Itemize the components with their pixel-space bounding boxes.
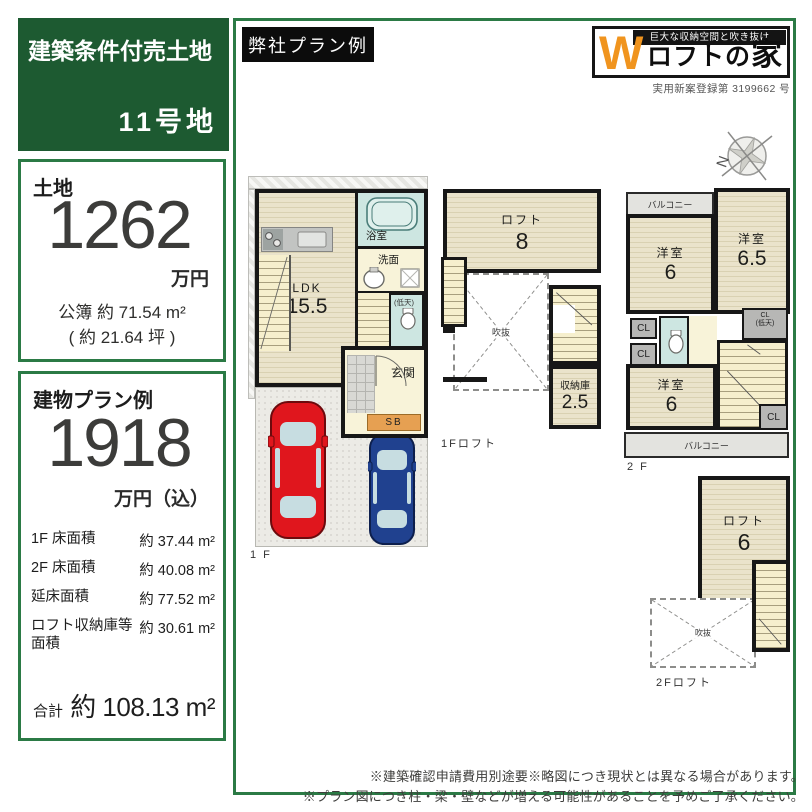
lot-number-label: 11号地: [118, 100, 217, 139]
land-price-panel: 土地 1262 万円 公簿 約 71.54 m² ( 約 21.64 坪 ): [18, 159, 226, 362]
entrance-tile: [347, 355, 375, 413]
logo-box: 巨大な収納空間と吹き抜け W ロフトの家: [592, 26, 790, 78]
room-label: 洋室: [738, 230, 766, 247]
land-price-unit: 万円: [171, 264, 209, 291]
disclaimer-line: ※プラン図につき柱・梁・壁などが増える可能性があることを予めご了承ください。: [303, 787, 804, 807]
balcony-top: バルコニー: [626, 192, 714, 216]
ldk-size: 15.5: [287, 295, 328, 319]
title-box: 建築条件付売土地 11号地: [18, 18, 229, 151]
toilet-icon: [668, 330, 684, 354]
total-value: 約 108.13 m²: [70, 687, 215, 724]
stairs-2f-loft: [752, 560, 790, 652]
logo-name: ロフトの家: [647, 29, 783, 74]
site-edge-hatch: [248, 176, 428, 189]
table-row: 延床面積 約 77.52 m²: [31, 588, 215, 609]
row-label: 延床面積: [31, 588, 139, 609]
car-blue-icon: [368, 432, 416, 546]
void-label: 吹抜: [693, 628, 713, 639]
room-wc: (低天): [389, 293, 424, 353]
sale-type-label: 建築条件付売土地: [28, 32, 212, 66]
company-plan-tag: 弊社プラン例: [242, 27, 374, 62]
floor-plan-2f-loft: ロフト 6 吹抜 2Fロフト: [648, 470, 794, 710]
wc-low-ceiling-note: (低天): [394, 297, 414, 308]
land-area-tsubo: ( 約 21.64 坪 ): [21, 323, 223, 348]
balcony-label: バルコニー: [648, 198, 693, 211]
row-value: 約 30.61 m²: [139, 617, 215, 653]
closet-cl: CL: [630, 318, 657, 339]
hall-2f: [689, 316, 717, 368]
logo-w-letter: W: [599, 28, 643, 78]
stove-icon: [262, 228, 332, 251]
total-label: 合計: [33, 700, 63, 721]
row-value: 約 37.44 m²: [139, 530, 215, 551]
void-area-2f: 吹抜: [650, 598, 756, 668]
stairs-loft-right: [549, 285, 601, 365]
stairs-1f: [259, 255, 291, 351]
storage-size: 2.5: [562, 392, 588, 414]
room-size: 6: [665, 261, 677, 285]
building-price-panel: 建物プラン例 1918 万円（込） 1F 床面積 約 37.44 m² 2F 床…: [18, 371, 226, 741]
wall-bar: [443, 377, 487, 382]
compass-icon: N: [714, 126, 778, 190]
door-arc-icon: [375, 355, 407, 387]
basin-icon: [362, 267, 386, 289]
void-area: 吹抜: [453, 273, 549, 391]
total-area-row: 合計 約 108.13 m²: [33, 687, 215, 724]
table-row: ロフト収納庫等面積 約 30.61 m²: [31, 617, 215, 653]
site-edge-hatch: [248, 189, 255, 399]
loft-size: 6: [738, 529, 751, 556]
room-bath: 浴室: [355, 193, 424, 249]
utility-model-registration: 実用新案登録第 3199662 号: [592, 81, 790, 96]
stairs-mid-1f: [355, 293, 389, 347]
entrance-block: 玄関 SB: [341, 346, 428, 438]
cl-label: CL: [637, 349, 650, 360]
floor-area-table: 1F 床面積 約 37.44 m² 2F 床面積 約 40.08 m² 延床面積…: [31, 522, 215, 653]
land-area-registered: 公簿 約 71.54 m²: [21, 298, 223, 323]
wash-label: 洗面: [378, 252, 399, 267]
logo-name-tail: 家: [751, 37, 783, 72]
row-label: ロフト収納庫等面積: [31, 617, 139, 653]
room-wash: 洗面: [355, 249, 424, 293]
shoe-box: SB: [367, 414, 421, 431]
ldk-label: LDK: [292, 281, 321, 295]
caption-1f: 1 F: [250, 549, 272, 561]
cl-label: CL: [767, 412, 780, 423]
bathtub-icon: [366, 197, 418, 231]
w-loft-logo: 巨大な収納空間と吹き抜け W ロフトの家 実用新案登録第 3199662 号: [592, 26, 790, 96]
disclaimer: ※建築確認申請費用別途要※略図につき現状とは異なる場合があります。 ※プラン図に…: [303, 767, 804, 806]
balcony-label: バルコニー: [684, 439, 729, 452]
washer-pan-icon: [400, 268, 420, 288]
floor-plan-1f: LDK 15.5 浴室: [248, 176, 432, 564]
building-price: 1918: [21, 408, 217, 479]
car-red-icon: [268, 400, 328, 540]
loft-label: ロフト: [723, 512, 765, 529]
closet-cl: CL: [630, 343, 657, 366]
room-west-65: 洋室 6.5: [714, 188, 790, 314]
storage-label: 収納庫: [560, 377, 590, 392]
room-wc-2f: [659, 316, 689, 368]
toilet-icon: [400, 308, 416, 330]
room-size: 6.5: [737, 247, 766, 271]
room-size: 6: [666, 393, 678, 417]
room-west-6-bottom: 洋室 6: [626, 364, 717, 430]
row-value: 約 40.08 m²: [139, 559, 215, 580]
caption-1f-loft: 1Fロフト: [441, 435, 497, 451]
room-label: 洋室: [657, 376, 685, 393]
void-label: 吹抜: [490, 326, 512, 339]
floor-plan-1f-loft: ロフト 8 吹抜 収納庫 2.5 1Fロフト: [441, 187, 603, 449]
row-label: 1F 床面積: [31, 530, 139, 551]
loft-size: 8: [516, 228, 529, 255]
room-west-6-top: 洋室 6: [626, 214, 715, 314]
floor-plan-2f: 洋室 6.5 バルコニー 洋室 6 CL CL CL (低天) 洋室 6 CL …: [622, 186, 794, 474]
stairs-loft-left: [441, 257, 467, 327]
bath-label: 浴室: [366, 228, 387, 243]
building-price-unit: 万円（込）: [114, 484, 209, 511]
closet-cl: CL: [759, 404, 788, 430]
row-value: 約 77.52 m²: [139, 588, 215, 609]
loft-label: ロフト: [501, 211, 543, 228]
room-storage: 収納庫 2.5: [549, 365, 601, 429]
disclaimer-line: ※建築確認申請費用別途要※略図につき現状とは異なる場合があります。: [303, 767, 804, 787]
land-price: 1262: [21, 190, 217, 261]
balcony-bottom: バルコニー: [624, 432, 789, 458]
caption-2f-loft: 2Fロフト: [656, 674, 712, 690]
shoe-box-label: SB: [385, 417, 402, 428]
caption-2f: 2 F: [627, 461, 649, 473]
closet-line: (低天): [744, 320, 786, 328]
row-label: 2F 床面積: [31, 559, 139, 580]
kitchen-counter: [261, 227, 333, 252]
closet-low-ceiling: CL (低天): [742, 308, 788, 340]
table-row: 2F 床面積 約 40.08 m²: [31, 559, 215, 580]
cl-label: CL: [637, 323, 650, 334]
table-row: 1F 床面積 約 37.44 m²: [31, 530, 215, 551]
room-label: 洋室: [656, 244, 684, 261]
logo-name-head: ロフトの: [647, 43, 751, 71]
